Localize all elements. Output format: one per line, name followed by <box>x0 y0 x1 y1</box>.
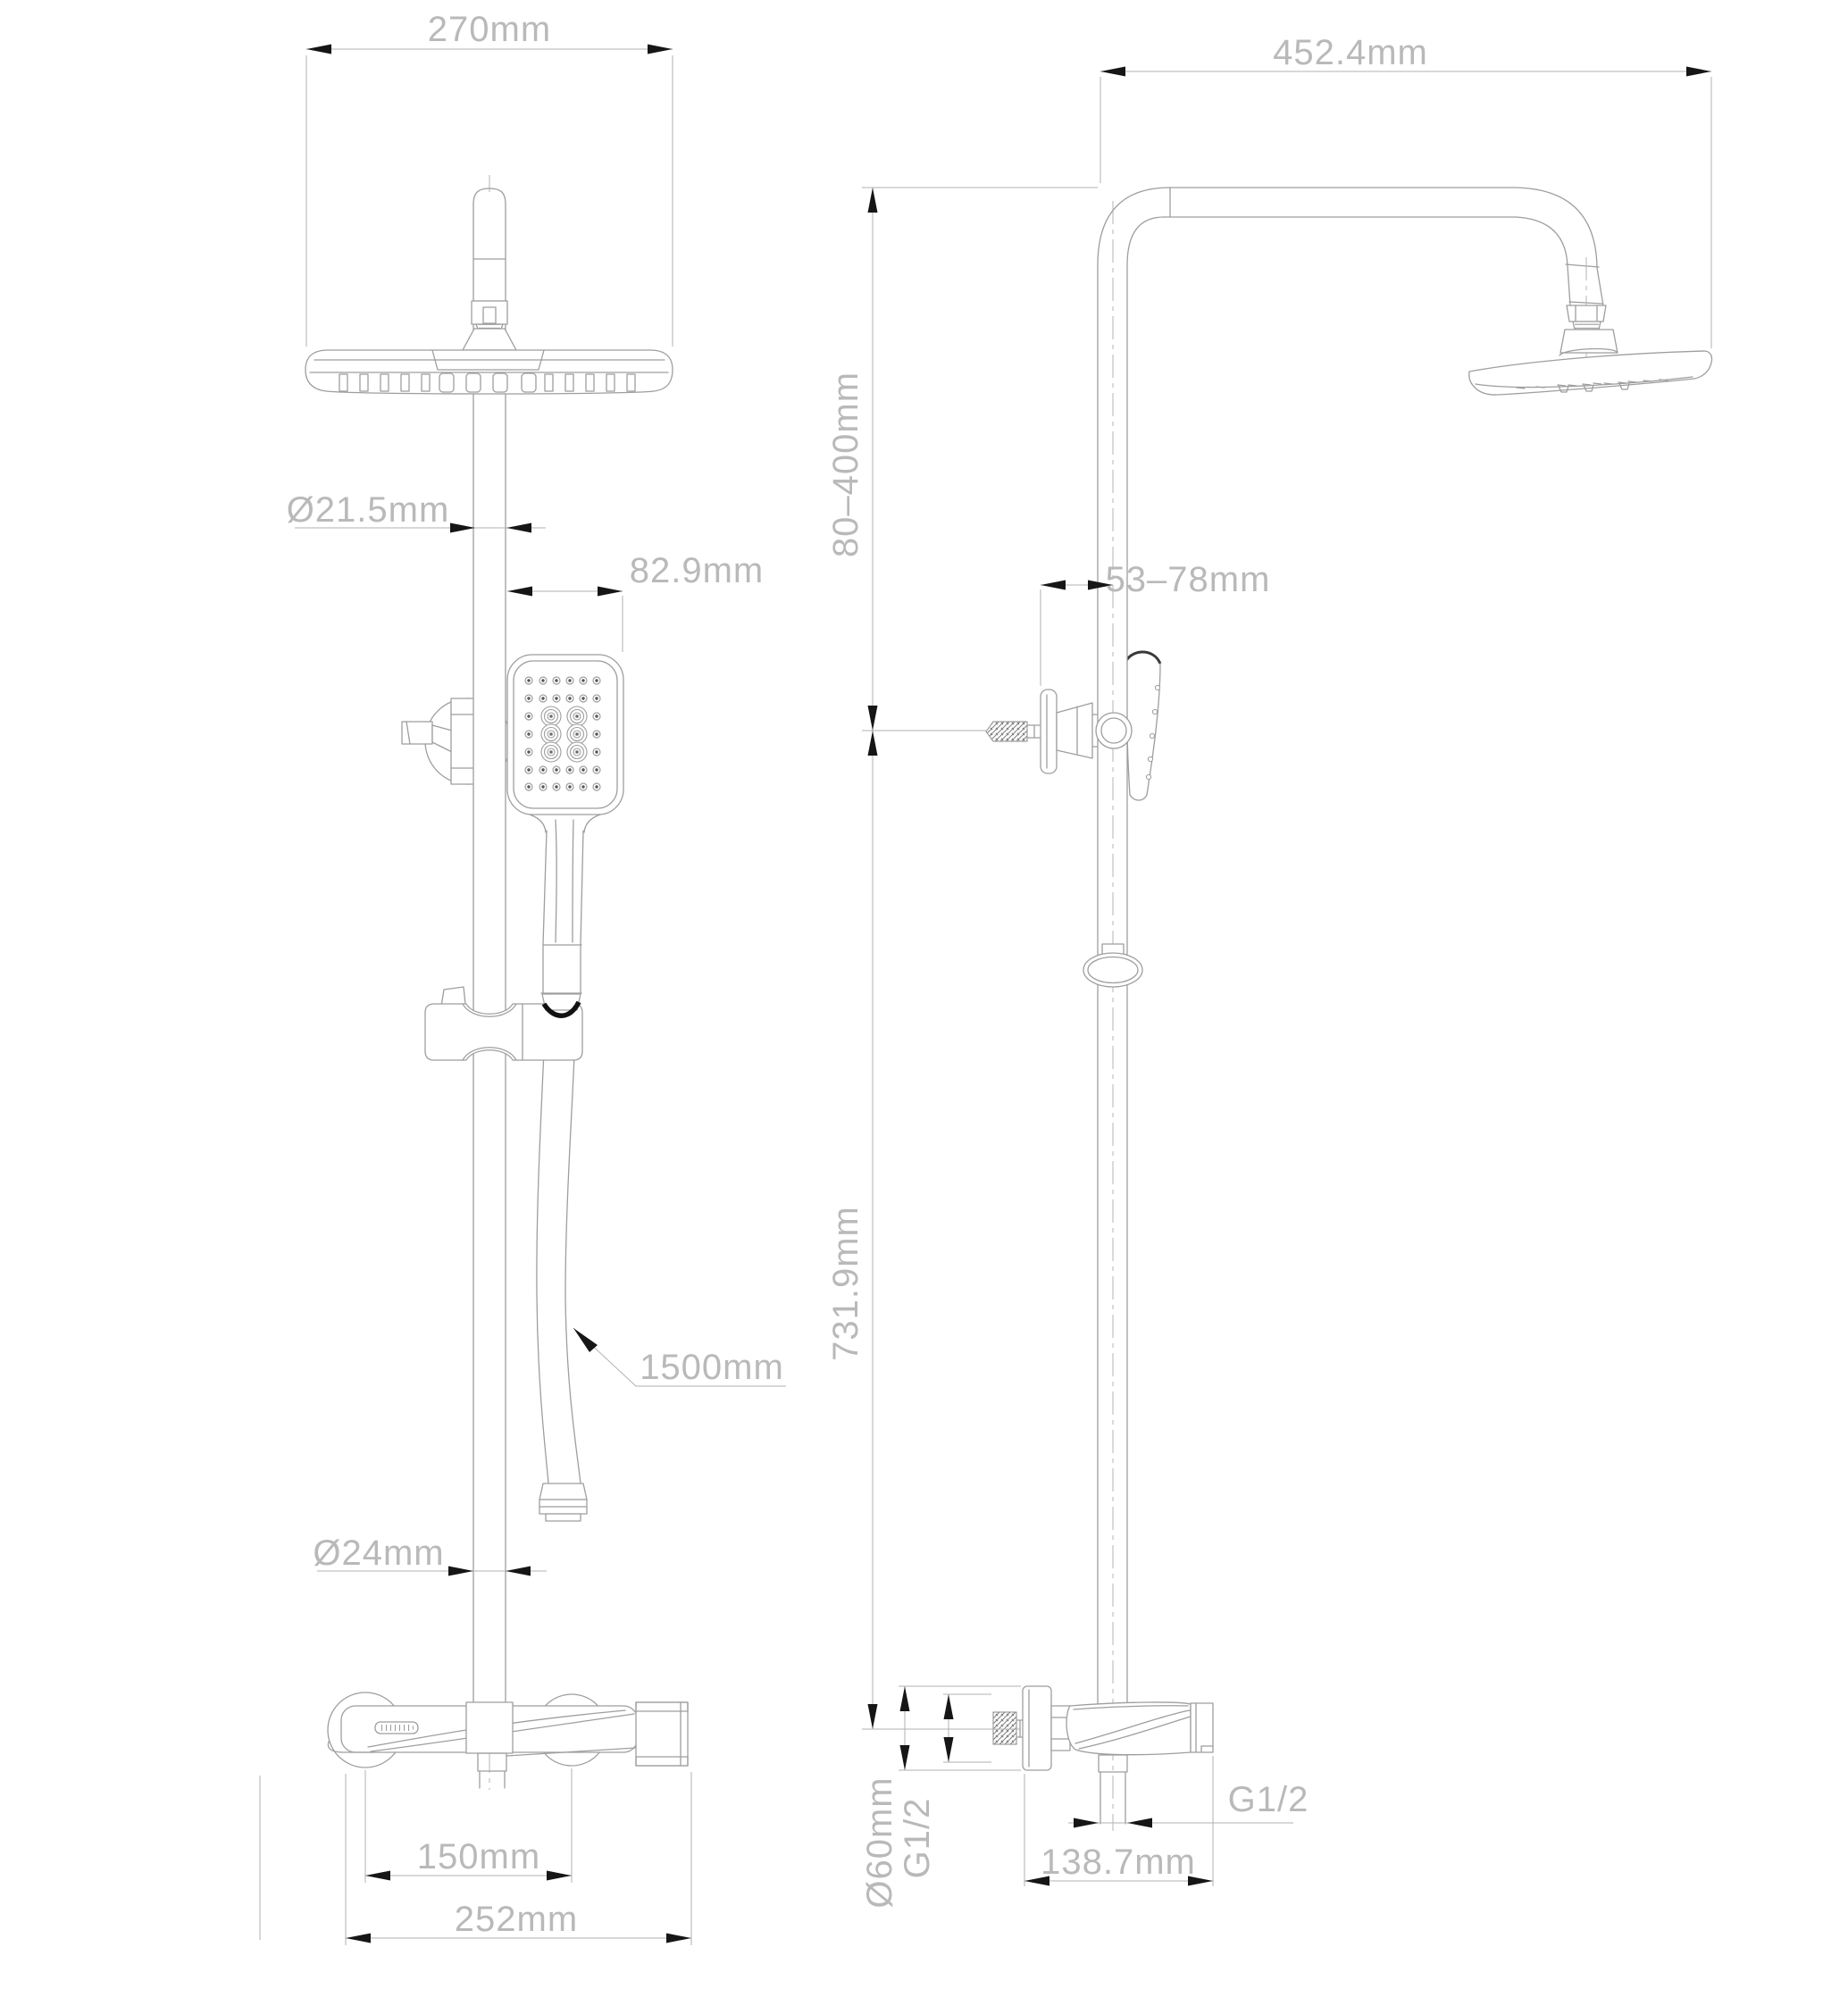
dim-arm-reach: 452.4mm <box>1100 33 1711 348</box>
front-riser-pipe <box>473 188 506 1704</box>
shower-arm-side <box>1098 188 1712 395</box>
dim-pipe-lower-dia: Ø24mm <box>313 1534 547 1576</box>
dim-270mm-label: 270mm <box>428 10 551 49</box>
dim-1500mm-label: 1500mm <box>640 1348 784 1387</box>
dim-bracket-offset-range: 53–78mm <box>1041 560 1270 686</box>
technical-drawing-page: 270mm Ø21.5mm 82.9mm 1500mm Ø24mm <box>0 0 1848 1989</box>
dim-21-5mm-label: Ø21.5mm <box>287 490 450 530</box>
dim-80-400mm-label: 80–400mm <box>826 372 865 557</box>
dim-g12-inlet-label: G1/2 <box>898 1798 937 1879</box>
dim-outlet-thread: G1/2 <box>1068 1780 1309 1828</box>
dim-g12-outlet-label: G1/2 <box>1228 1780 1309 1819</box>
dim-inlet-distance: 150mm <box>365 1768 572 1883</box>
handshower-front <box>507 655 623 993</box>
dim-452-4mm-label: 452.4mm <box>1273 33 1428 72</box>
dim-252mm-label: 252mm <box>455 1900 578 1939</box>
side-view: 452.4mm 80–400mm 731.9mm 53–78mm <box>826 33 1712 1909</box>
front-view: 270mm Ø21.5mm 82.9mm 1500mm Ø24mm <box>260 10 786 1945</box>
dim-150mm-label: 150mm <box>417 1837 540 1876</box>
dim-53-78mm-label: 53–78mm <box>1106 560 1271 599</box>
mixer-valve-side <box>993 1686 1213 1824</box>
dim-138-7mm-label: 138.7mm <box>1041 1843 1196 1882</box>
dim-mixer-depth: 138.7mm <box>1024 1756 1213 1886</box>
overhead-shower-side <box>1469 349 1712 396</box>
wall-flange-side <box>1023 1686 1051 1770</box>
handle-side <box>1191 1703 1213 1752</box>
wall-plate-side <box>1041 689 1057 773</box>
dim-bracket-height-range: 80–400mm <box>826 188 1098 731</box>
overhead-shower-front <box>305 301 673 394</box>
dim-inlet-thread: G1/2 <box>898 1694 991 1878</box>
dim-731-9mm-label: 731.9mm <box>826 1206 865 1361</box>
dim-pipe-upper-dia: Ø21.5mm <box>287 490 546 533</box>
dim-hose-length: 1500mm <box>573 1328 786 1387</box>
shower-hose <box>537 1010 587 1521</box>
dim-24mm-label: Ø24mm <box>313 1534 444 1573</box>
shower-system-dimension-drawing: 270mm Ø21.5mm 82.9mm 1500mm Ø24mm <box>0 0 1848 1989</box>
wall-anchor <box>993 1712 1016 1744</box>
dim-riser-length: 731.9mm <box>826 731 1021 1729</box>
outlet-thread-front <box>478 1753 506 1771</box>
dim-handshower-offset: 82.9mm <box>507 551 764 652</box>
hose-guide-ring <box>1083 944 1142 987</box>
mixer-valve-front <box>328 1692 688 1788</box>
wall-bracket-side <box>862 689 1132 773</box>
dim-60mm-label: Ø60mm <box>860 1776 899 1908</box>
dim-82-9mm-label: 82.9mm <box>630 551 765 590</box>
